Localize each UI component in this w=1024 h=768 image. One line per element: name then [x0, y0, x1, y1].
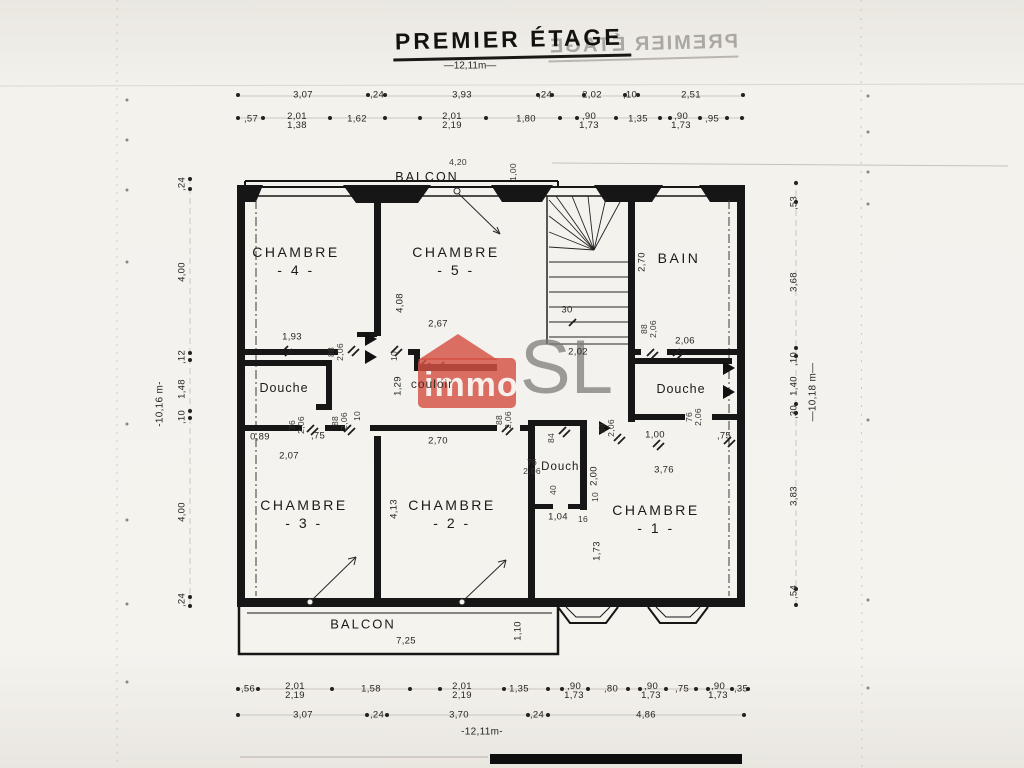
- room-label-balcon-bottom: BALCON: [330, 617, 395, 632]
- room-label-douche-left: Douche: [259, 381, 308, 395]
- room-number-chambre-1: - 1 -: [637, 520, 674, 536]
- dim-label: ,24: [530, 710, 544, 721]
- dim-label: 3,70: [449, 710, 469, 721]
- dim-label: 2,02: [582, 90, 602, 101]
- dim-label: 3,07: [293, 90, 313, 101]
- dim-label: 1,40: [789, 376, 800, 396]
- dim-label: ,56: [241, 684, 255, 695]
- room-number-chambre-2: - 2 -: [433, 515, 470, 531]
- room-label-balcon-top: BALCON: [395, 170, 458, 184]
- dim-label: 1,58: [361, 684, 381, 695]
- dim-label: 0,89: [250, 432, 270, 443]
- dim-label: 4,08: [395, 293, 406, 313]
- dim-label: 3,83: [789, 486, 800, 506]
- dim-label: 2,06: [675, 336, 695, 347]
- dim-label: ,35: [734, 684, 748, 695]
- dim-label: 3,76: [654, 465, 674, 476]
- dim-label: 2,70: [428, 436, 448, 447]
- dim-label: ,57: [244, 114, 258, 125]
- dim-label: ,75: [717, 431, 731, 442]
- overall-height-right: —10,18 m—: [808, 363, 819, 422]
- dim-label: 16: [578, 514, 588, 524]
- door-size-label: 88 2,06: [640, 320, 658, 338]
- dim-label: 4,20: [449, 157, 467, 167]
- dim-label: 3,93: [452, 90, 472, 101]
- dim-label: 1,00: [645, 430, 665, 441]
- dim-label: 1,62: [347, 114, 367, 125]
- room-label-chambre-4: CHAMBRE: [252, 244, 340, 260]
- dim-label: ,53: [789, 196, 800, 210]
- dim-label: ,80: [604, 684, 618, 695]
- dim-label: ,12: [177, 350, 188, 364]
- dim-label: ,90 1,73: [579, 112, 599, 130]
- room-number-chambre-3: - 3 -: [285, 515, 322, 531]
- dim-label: ,54: [789, 585, 800, 599]
- room-label-chambre-2: CHAMBRE: [408, 497, 496, 513]
- dim-label: 2,01 2,19: [442, 112, 462, 130]
- door-size-label: 88 2,06: [495, 411, 513, 429]
- dim-label: 1,04: [548, 512, 568, 523]
- dim-label: ,10: [789, 352, 800, 366]
- room-number-chambre-5: - 5 -: [437, 262, 474, 278]
- dim-label: 2,51: [681, 90, 701, 101]
- dim-label: 2,01 1,38: [287, 112, 307, 130]
- dim-label: 1,35: [509, 684, 529, 695]
- labels-layer: 3,07 ,24 3,93 ,24 2,02 ,10 2,51 ,57 2,01…: [0, 0, 1024, 768]
- dim-label: ,24: [177, 177, 188, 191]
- dim-label: 1,93: [282, 332, 302, 343]
- door-size-label: 76 2,06: [288, 416, 306, 434]
- room-label-bain: BAIN: [658, 250, 701, 266]
- dim-label: 7,25: [396, 636, 416, 647]
- room-label-chambre-5: CHAMBRE: [412, 244, 500, 260]
- dim-label: ,30: [789, 405, 800, 419]
- dim-label: ,10: [177, 410, 188, 424]
- door-size-label: 76 2,06: [523, 458, 541, 476]
- dim-label: 1,10: [513, 621, 524, 641]
- room-label-couloir: couloir: [411, 377, 453, 391]
- dim-label: ,75: [311, 431, 325, 442]
- dim-label: 10: [590, 492, 600, 502]
- dim-label: 4,00: [177, 502, 188, 522]
- dim-label: ,10: [623, 90, 637, 101]
- dim-label: 2,70: [637, 252, 648, 272]
- dim-label: ,24: [177, 593, 188, 607]
- door-size-label: 88 2,06: [331, 412, 349, 430]
- dim-label: 10: [352, 411, 362, 421]
- dim-label: 1,73: [592, 541, 603, 561]
- dim-label: ,95: [705, 114, 719, 125]
- room-label-douche-right: Douche: [656, 382, 705, 396]
- dim-label: 2,01 2,19: [285, 682, 305, 700]
- dim-label: 2,01 2,19: [452, 682, 472, 700]
- door-size-label: 88 2,06: [327, 343, 345, 361]
- dim-label: ,24: [538, 90, 552, 101]
- dim-label: ,90 1,73: [641, 682, 661, 700]
- dim-label: ,24: [370, 710, 384, 721]
- room-number-chambre-4: - 4 -: [277, 262, 314, 278]
- dim-label: 4,86: [636, 710, 656, 721]
- overall-width-bottom: -12,11m-: [461, 727, 503, 738]
- dim-label: 10: [389, 351, 399, 361]
- dim-label: 4,13: [389, 499, 400, 519]
- dim-label: 1,35: [628, 114, 648, 125]
- room-label-douche-center: Douche: [541, 461, 587, 473]
- dim-label: ,24: [370, 90, 384, 101]
- dim-label: 2,02: [568, 347, 588, 358]
- dim-label: 2,00: [589, 466, 600, 486]
- overall-height-left: -10,16 m-: [155, 381, 166, 427]
- room-label-chambre-3: CHAMBRE: [260, 497, 348, 513]
- dim-label: 1,80: [516, 114, 536, 125]
- dim-label: 1,29: [393, 376, 404, 396]
- scanned-floorplan-page: immo SL PREMIER ÉTAGE PREMIER ÉTAGE —12,…: [0, 0, 1024, 768]
- dim-label: ,90 1,73: [671, 112, 691, 130]
- dim-label: 2,67: [428, 319, 448, 330]
- dim-label: 2,07: [279, 451, 299, 462]
- dim-label: 4,00: [177, 262, 188, 282]
- room-label-chambre-1: CHAMBRE: [612, 502, 700, 518]
- dim-label: 3,07: [293, 710, 313, 721]
- dim-label: 1,00: [508, 163, 518, 181]
- dim-label: 1,48: [177, 379, 188, 399]
- dim-label: ,90 1,73: [708, 682, 728, 700]
- dim-label: 84: [546, 433, 556, 443]
- dim-label: 40: [548, 485, 558, 495]
- door-size-label: 88 2,06: [598, 419, 616, 437]
- dim-label: 30: [561, 305, 572, 316]
- dim-label: ,75: [675, 684, 689, 695]
- dim-label: ,90 1,73: [564, 682, 584, 700]
- dim-label: 3,68: [789, 272, 800, 292]
- door-size-label: 76 2,06: [685, 408, 703, 426]
